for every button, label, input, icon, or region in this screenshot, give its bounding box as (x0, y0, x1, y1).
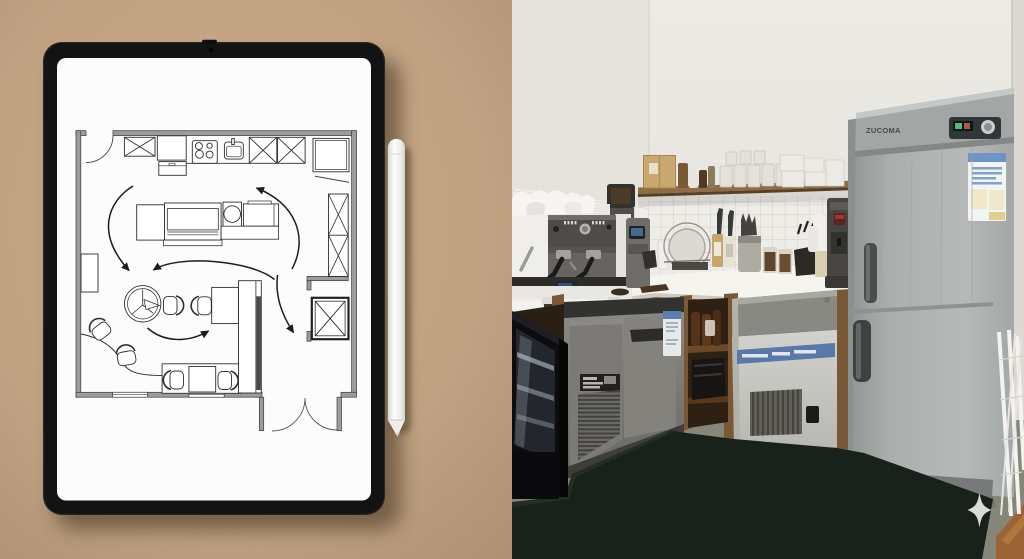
svg-text:ZUCOMA: ZUCOMA (866, 126, 901, 135)
